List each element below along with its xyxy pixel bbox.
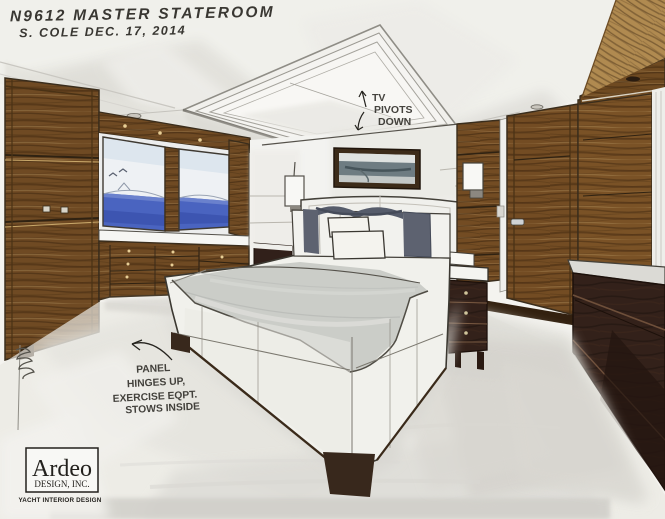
svg-text:DESIGN, INC.: DESIGN, INC. [34, 479, 89, 489]
svg-text:DOWN: DOWN [378, 116, 411, 128]
svg-text:PANEL: PANEL [136, 363, 171, 376]
svg-text:S. COLE DEC. 17, 2014: S. COLE DEC. 17, 2014 [19, 23, 186, 40]
svg-text:YACHT INTERIOR DESIGN: YACHT INTERIOR DESIGN [18, 497, 101, 504]
svg-text:PIVOTS: PIVOTS [374, 104, 413, 116]
svg-text:TV: TV [372, 92, 385, 104]
